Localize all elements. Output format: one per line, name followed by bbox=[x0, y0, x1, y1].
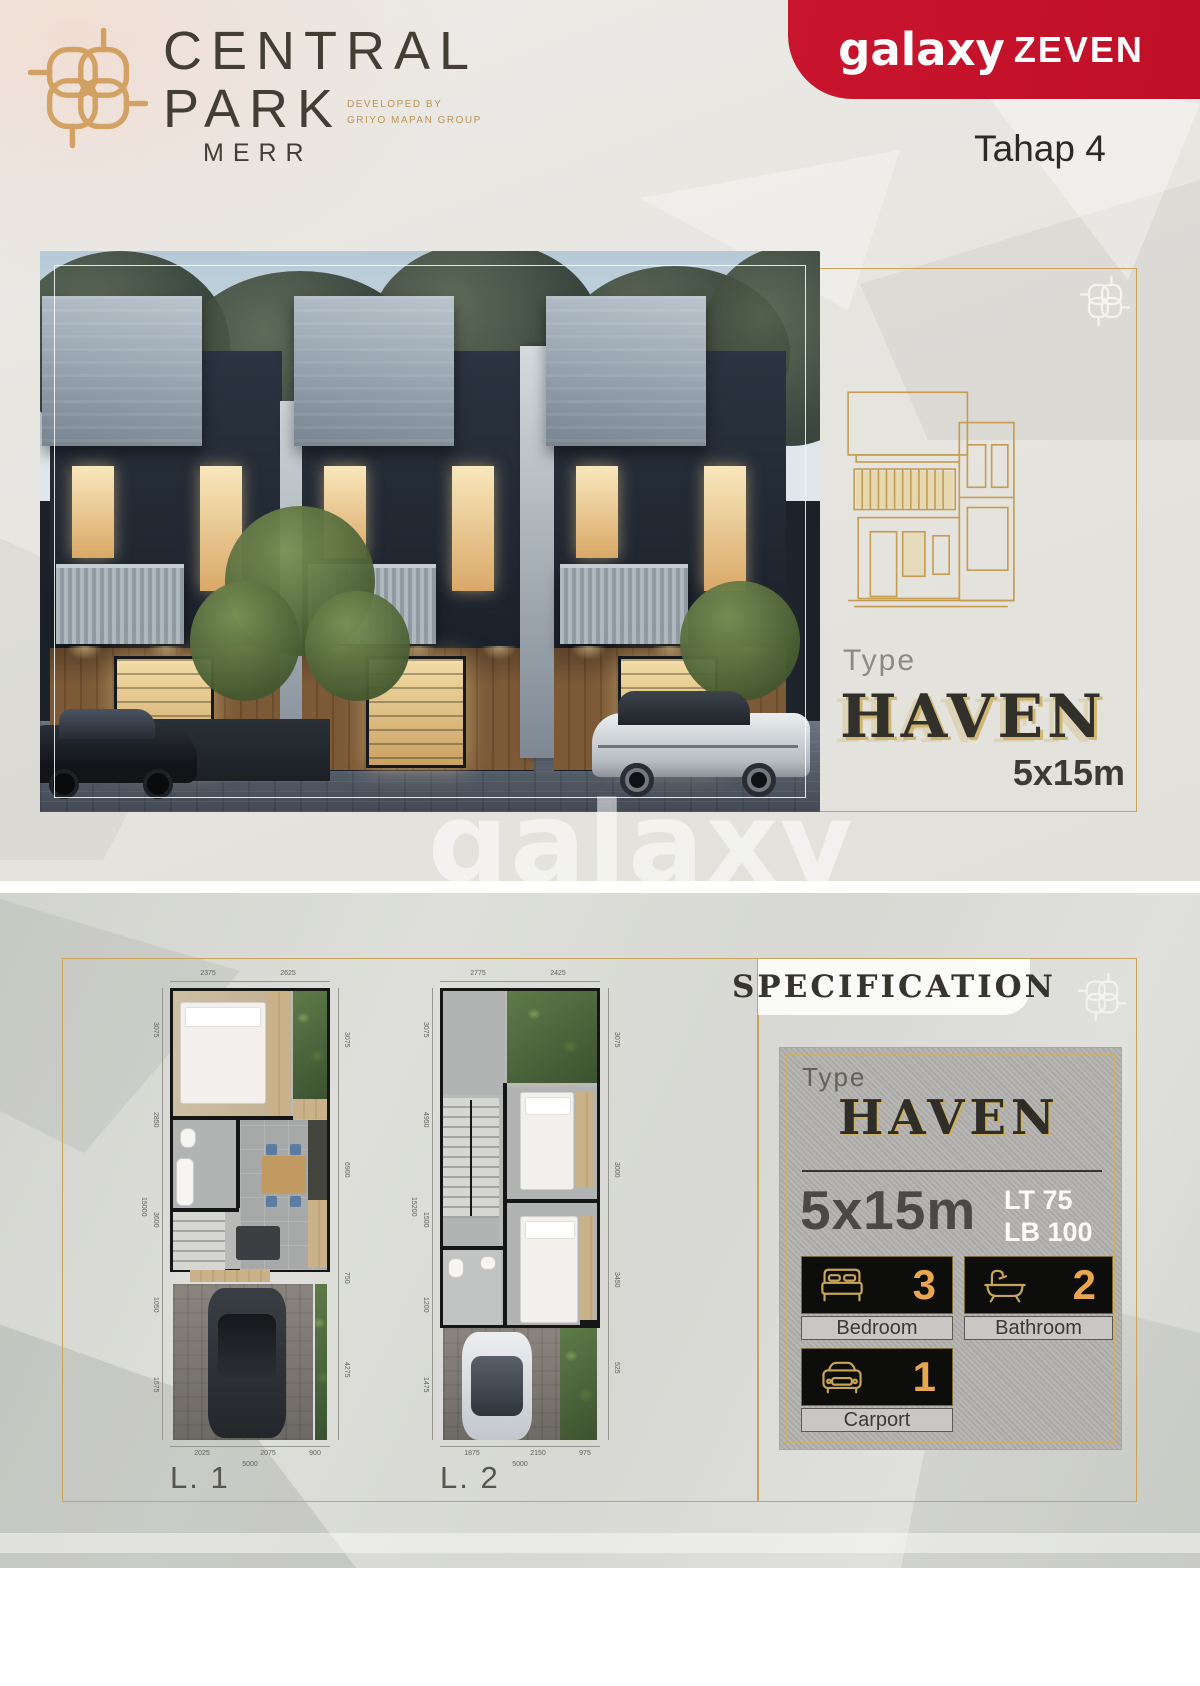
stairs bbox=[173, 1212, 225, 1270]
toilet bbox=[180, 1128, 196, 1148]
feature-bedroom-label: Bedroom bbox=[801, 1316, 953, 1340]
kitchen bbox=[308, 1120, 327, 1200]
feature-bathroom-badge: 2 bbox=[964, 1256, 1113, 1314]
spec-lb: LB 100 bbox=[1004, 1217, 1093, 1247]
spec-lt: LT 75 bbox=[1004, 1185, 1073, 1215]
galaxy-wordmark: galaxy bbox=[838, 27, 1005, 72]
bathroom-count: 2 bbox=[1073, 1261, 1096, 1309]
phase-label: Tahap 4 bbox=[955, 128, 1125, 170]
feature-bedroom-badge: 3 bbox=[801, 1256, 953, 1314]
brand-flower-icon bbox=[28, 12, 148, 164]
garden bbox=[507, 991, 597, 1083]
type-label: Type bbox=[843, 644, 916, 678]
zeven-wordmark: ZEVEN bbox=[1014, 32, 1144, 68]
bed bbox=[180, 1002, 266, 1104]
type-name: HAVEN bbox=[840, 682, 1106, 752]
dim-label: 2375 bbox=[188, 970, 228, 977]
carport-count: 1 bbox=[913, 1353, 936, 1401]
bathtub-icon bbox=[981, 1265, 1029, 1305]
bed bbox=[520, 1092, 574, 1190]
feature-carport-label: Carport bbox=[801, 1408, 953, 1432]
garden bbox=[293, 991, 327, 1099]
brand-wordmark-park: PARK bbox=[163, 82, 342, 136]
floorplan-l2-label: L. 2 bbox=[440, 1460, 500, 1496]
brand-developer: DEVELOPED BY GRIYO MAPAN GROUP bbox=[347, 97, 482, 129]
bedroom-count: 3 bbox=[913, 1261, 936, 1309]
dining-table bbox=[262, 1156, 306, 1194]
bed-icon bbox=[818, 1265, 866, 1305]
spec-banner: SPECIFICATION bbox=[758, 959, 1030, 1015]
sink bbox=[480, 1256, 496, 1270]
photo-inner-border bbox=[54, 265, 806, 798]
brand-wordmark-central: CENTRAL bbox=[163, 24, 478, 78]
top-section: CENTRAL PARK DEVELOPED BY GRIYO MAPAN GR… bbox=[0, 0, 1200, 881]
house-facade-drawing bbox=[840, 383, 1022, 633]
floorplan-l1-label: L. 1 bbox=[170, 1460, 230, 1496]
flyer-page: CENTRAL PARK DEVELOPED BY GRIYO MAPAN GR… bbox=[0, 0, 1200, 1686]
car-topview bbox=[462, 1332, 532, 1440]
panel-flower-icon bbox=[1080, 276, 1130, 326]
feature-carport-badge: 1 bbox=[801, 1348, 953, 1406]
brand-merr: MERR bbox=[203, 139, 313, 168]
spec-type-label: Type bbox=[802, 1062, 866, 1093]
car-topview bbox=[208, 1288, 286, 1438]
bottom-section: 2375 2625 3075 2850 3600 1050 1575 15000… bbox=[0, 893, 1200, 1568]
toilet bbox=[448, 1258, 464, 1278]
spec-title: SPECIFICATION bbox=[732, 969, 1056, 1005]
galaxy-zeven-banner: galaxy ZEVEN bbox=[788, 0, 1200, 99]
bathtub bbox=[176, 1158, 194, 1206]
spec-type-name: HAVEN bbox=[838, 1090, 1060, 1146]
spec-size: 5x15m bbox=[800, 1178, 976, 1242]
dim-label: 2625 bbox=[268, 970, 308, 977]
spec-flower-icon bbox=[1078, 973, 1126, 1021]
car-icon bbox=[818, 1357, 866, 1397]
feature-bathroom-label: Bathroom bbox=[964, 1316, 1113, 1340]
floorplan-l2: 2775 2425 3075 4950 1500 1200 1475 15200… bbox=[398, 962, 633, 1507]
specification-card: Type HAVEN 5x15m LT 75 LB 100 bbox=[779, 1047, 1122, 1450]
sofa bbox=[236, 1226, 280, 1260]
galaxy-watermark: galaxy bbox=[428, 788, 855, 881]
hero-photo bbox=[40, 251, 820, 812]
floorplan-l1: 2375 2625 3075 2850 3600 1050 1575 15000… bbox=[128, 962, 363, 1507]
type-size: 5x15m bbox=[940, 752, 1125, 794]
bed bbox=[520, 1216, 578, 1323]
spec-land-building: LT 75 LB 100 bbox=[1004, 1184, 1093, 1249]
